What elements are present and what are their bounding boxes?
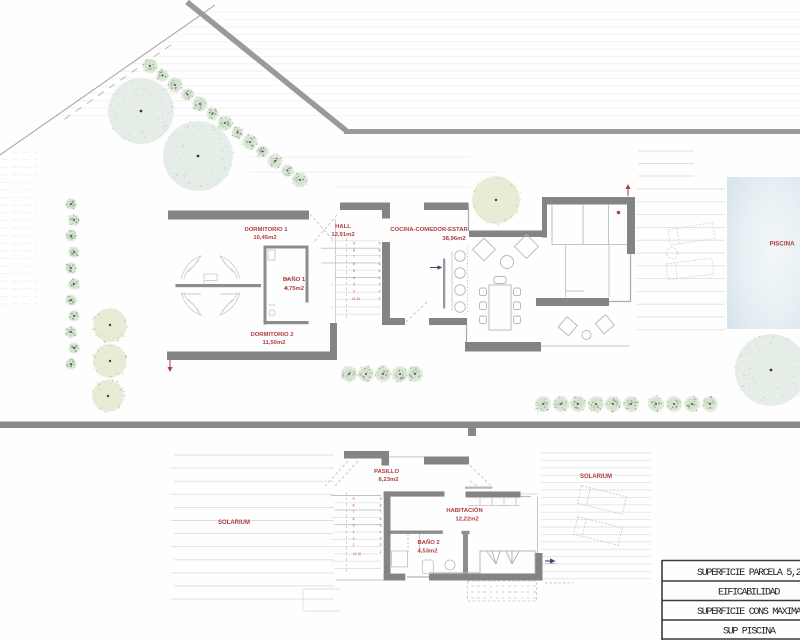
svg-text:11,50m2: 11,50m2 xyxy=(263,340,287,346)
svg-text:6: 6 xyxy=(380,517,382,521)
svg-text:1: 1 xyxy=(380,550,382,554)
svg-text:SOLARIUM: SOLARIUM xyxy=(218,520,250,526)
svg-text:12,91m2: 12,91m2 xyxy=(331,232,355,238)
svg-text:2: 2 xyxy=(380,543,382,547)
svg-text:11 10: 11 10 xyxy=(353,552,361,556)
svg-text:PASILLO: PASILLO xyxy=(374,469,400,475)
svg-text:4,75m2: 4,75m2 xyxy=(284,286,305,292)
svg-text:5: 5 xyxy=(379,269,381,273)
svg-text:SUP PISCINA: SUP PISCINA xyxy=(723,627,776,638)
svg-text:3: 3 xyxy=(353,537,355,541)
svg-text:DORMITORIO 2: DORMITORIO 2 xyxy=(250,332,294,338)
svg-text:3: 3 xyxy=(379,283,381,287)
svg-text:2: 2 xyxy=(353,289,355,293)
svg-text:EIFICABILIDAD: EIFICABILIDAD xyxy=(718,588,780,599)
svg-text:8: 8 xyxy=(353,248,355,252)
svg-text:DORMITORIO 1: DORMITORIO 1 xyxy=(244,227,288,233)
svg-text:SOLARIUM: SOLARIUM xyxy=(580,474,612,480)
svg-text:10,45m2: 10,45m2 xyxy=(253,235,277,241)
svg-text:8: 8 xyxy=(353,504,355,508)
svg-text:3: 3 xyxy=(353,283,355,287)
svg-text:8: 8 xyxy=(379,248,381,252)
svg-text:5: 5 xyxy=(353,269,355,273)
svg-text:9: 9 xyxy=(379,242,381,246)
svg-text:PISCINA: PISCINA xyxy=(769,241,795,248)
svg-text:HALL: HALL xyxy=(335,224,351,230)
svg-text:6: 6 xyxy=(353,517,355,521)
svg-text:11 10: 11 10 xyxy=(352,297,360,301)
svg-text:HABITACIÓN: HABITACIÓN xyxy=(446,506,483,514)
svg-text:2: 2 xyxy=(353,543,355,547)
svg-text:3: 3 xyxy=(380,537,382,541)
svg-text:4: 4 xyxy=(379,276,381,280)
svg-text:6: 6 xyxy=(353,262,355,266)
svg-text:8: 8 xyxy=(380,504,382,508)
svg-text:4: 4 xyxy=(380,530,382,534)
svg-text:BAÑO 1: BAÑO 1 xyxy=(283,276,306,283)
svg-text:7: 7 xyxy=(379,255,381,259)
svg-text:6,23m2: 6,23m2 xyxy=(379,477,400,483)
svg-text:4: 4 xyxy=(353,276,355,280)
svg-text:2: 2 xyxy=(379,289,381,293)
svg-text:COCINA-COMEDOR-ESTAR: COCINA-COMEDOR-ESTAR xyxy=(390,227,468,233)
svg-text:7: 7 xyxy=(353,255,355,259)
svg-text:6: 6 xyxy=(379,262,381,266)
svg-text:7: 7 xyxy=(380,510,382,514)
svg-text:12,22m2: 12,22m2 xyxy=(455,517,479,523)
svg-text:4,53m2: 4,53m2 xyxy=(418,548,439,554)
svg-text:BAÑO 2: BAÑO 2 xyxy=(417,539,440,546)
svg-text:5: 5 xyxy=(380,523,382,527)
svg-text:38,96m2: 38,96m2 xyxy=(442,236,466,242)
svg-text:1: 1 xyxy=(379,296,381,300)
svg-text:7: 7 xyxy=(353,510,355,514)
svg-text:9: 9 xyxy=(380,497,382,501)
svg-text:SUPERFICIE PARCELA 5,226M2: SUPERFICIE PARCELA 5,226M2 xyxy=(697,568,800,579)
svg-text:SUPERFICIE CONS MAXIMA: SUPERFICIE CONS MAXIMA xyxy=(697,607,800,618)
svg-text:9: 9 xyxy=(353,497,355,501)
svg-text:5: 5 xyxy=(353,523,355,527)
svg-text:9: 9 xyxy=(353,242,355,246)
svg-text:4: 4 xyxy=(353,530,355,534)
